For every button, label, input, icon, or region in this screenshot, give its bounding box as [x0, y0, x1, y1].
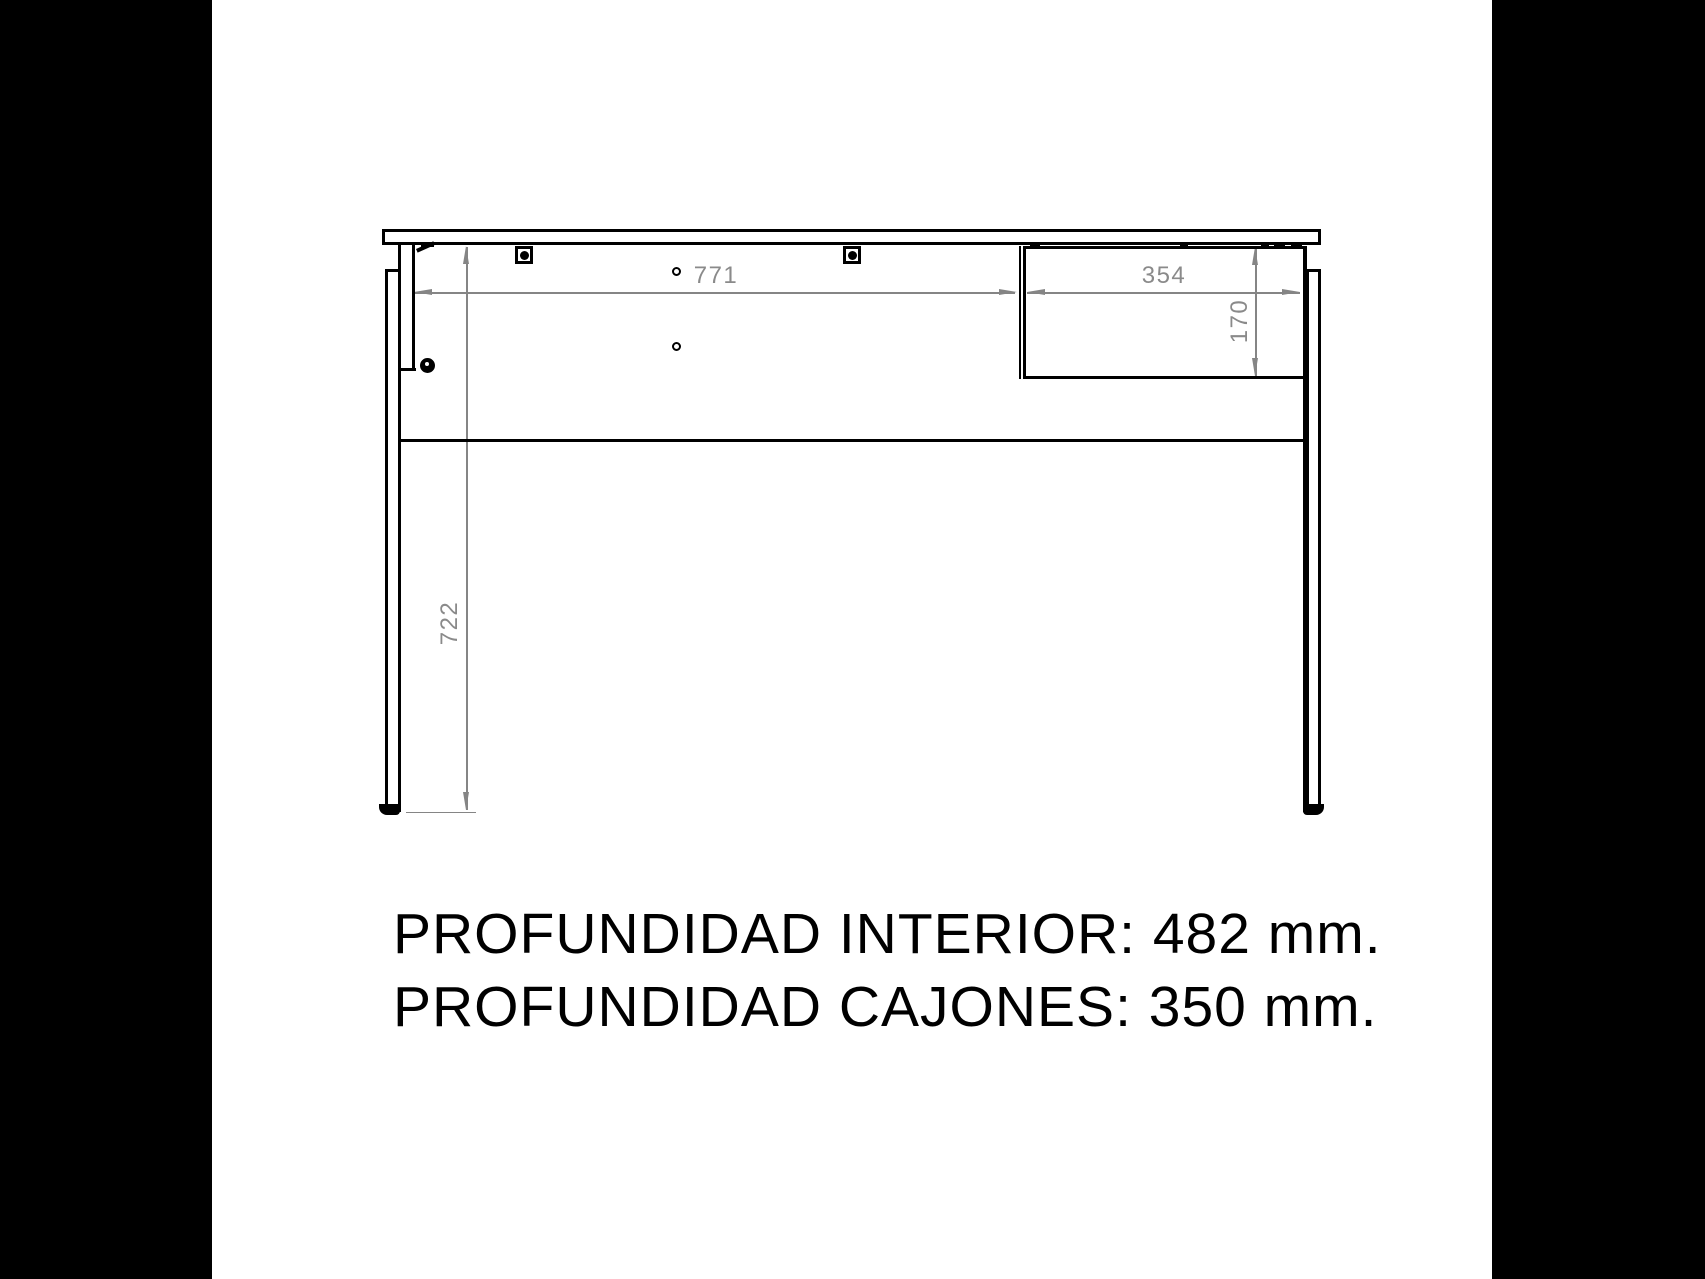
letterbox-right-bar [1492, 0, 1705, 1279]
note-drawer-depth: PROFUNDIDAD CAJONES: 350 mm. [393, 976, 1377, 1038]
note-interior-depth: PROFUNDIDAD INTERIOR: 482 mm. [393, 903, 1382, 965]
drawer-rail-tick [1274, 244, 1285, 247]
keyhole-lock-highlight [425, 362, 429, 366]
pilot-hole-1 [672, 267, 681, 276]
left-mount-plate-bottom-edge [399, 368, 416, 371]
desk-top [382, 229, 1321, 245]
left-leg [385, 269, 401, 812]
cam-lock-2-dot [848, 251, 857, 260]
dim-interior-width-arrow-right [999, 289, 1017, 295]
floor-extension-line [406, 812, 476, 814]
drawer-rail-tick [1261, 244, 1269, 247]
left-foot [379, 804, 400, 815]
dim-interior-width-label: 771 [666, 263, 766, 289]
back-panel-bottom-edge [399, 439, 1306, 442]
right-foot [1303, 804, 1324, 815]
left-mount-plate-right-edge [412, 244, 415, 371]
dim-leg-height-arrow-top [463, 246, 469, 264]
letterbox-left-bar [0, 0, 212, 1279]
drawer-housing-edge-line [1019, 246, 1021, 379]
left-leg-front-edge-line [398, 243, 401, 273]
pilot-hole-2 [672, 342, 681, 351]
drawer-rail-tick [1180, 244, 1188, 247]
dim-leg-height-line [466, 247, 468, 810]
drawer-rail-tick [1291, 244, 1302, 247]
dim-leg-height-label: 722 [437, 573, 463, 673]
right-leg [1306, 269, 1322, 812]
furniture-dimension-drawing: 771 354 170 722 PROFUNDIDAD IN [0, 0, 1705, 1279]
drawer-rail-tick [1030, 244, 1040, 247]
drawer [1023, 246, 1307, 379]
cam-lock-1-dot [520, 251, 529, 260]
keyhole-lock [420, 358, 435, 373]
dim-interior-width-line [414, 292, 1015, 294]
dim-leg-height-arrow-bottom [463, 792, 469, 810]
dim-interior-width-arrow-left [414, 289, 432, 295]
